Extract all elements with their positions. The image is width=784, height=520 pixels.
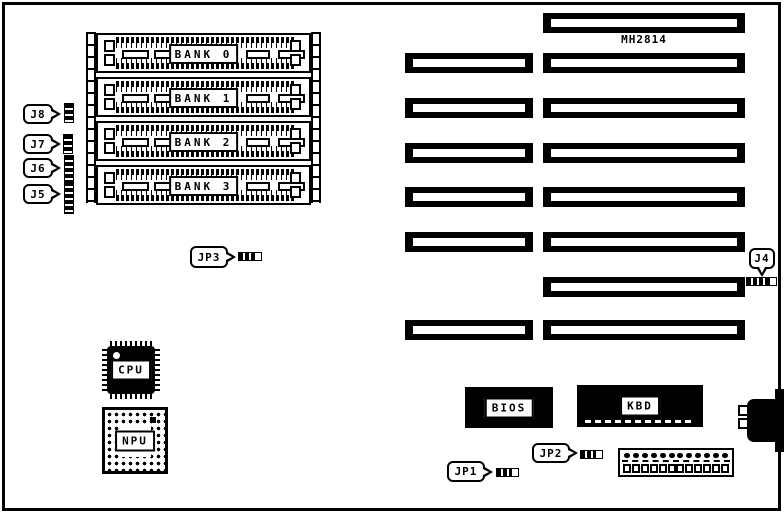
jumper-end-pin — [595, 451, 602, 458]
jumper-callout-j4: J4 — [749, 248, 775, 269]
header-pin — [713, 453, 719, 458]
expansion-slot-right — [543, 143, 745, 163]
header-pin-pad — [703, 464, 711, 473]
header-pin-pad — [712, 464, 720, 473]
jumper-callout-j7: J7 — [23, 134, 53, 154]
slot-contact-stripe — [551, 283, 737, 291]
kbd-controller-chip: KBD — [577, 385, 703, 427]
callout-pointer-fill — [483, 469, 489, 475]
jumper-label: J7 — [30, 138, 45, 151]
header-pin — [695, 453, 701, 458]
jumper-end-pin — [769, 278, 776, 285]
jumper-callout-jp2: JP2 — [532, 443, 570, 463]
expansion-slot-right — [543, 98, 745, 118]
callout-pointer-fill — [51, 191, 57, 197]
jumper-end-pin — [511, 469, 518, 476]
jumper-label: JP3 — [198, 251, 221, 264]
bios-label: BIOS — [485, 397, 534, 418]
simm-latch-rail-right — [311, 32, 321, 203]
slot-contact-stripe — [551, 19, 737, 27]
din-connector-notch — [738, 418, 749, 429]
kbd-label: KBD — [620, 396, 660, 417]
jumper-block-j6 — [64, 155, 74, 184]
jumper-label: JP2 — [540, 447, 563, 460]
header-pin-pad — [650, 464, 658, 473]
callout-pointer-fill — [226, 254, 232, 260]
bank-label: BANK 0 — [169, 44, 239, 64]
jumper-block-jp2 — [580, 450, 603, 459]
expansion-slot-right — [543, 232, 745, 252]
header-pin-pad — [676, 464, 684, 473]
expansion-slot-right — [543, 187, 745, 207]
slot-contact-stripe — [551, 59, 737, 67]
bank-label: BANK 1 — [169, 88, 239, 108]
jumper-callout-jp1: JP1 — [447, 461, 485, 482]
expansion-slot-right — [543, 320, 745, 340]
board-model-label: MH2814 — [543, 33, 745, 46]
header-pin — [660, 453, 666, 458]
jumper-label: JP1 — [455, 465, 478, 478]
header-pin-row-top — [620, 450, 732, 458]
latch-hook — [290, 186, 301, 198]
expansion-slot-right — [543, 277, 745, 297]
cpu-body: CPU — [107, 346, 155, 394]
header-pin-pad — [668, 464, 676, 473]
header-pin — [642, 453, 648, 458]
header-pin — [677, 453, 683, 458]
expansion-slot-right — [543, 13, 745, 33]
latch-hook — [290, 40, 301, 52]
din-connector-body — [747, 399, 777, 442]
npu-label: NPU — [115, 430, 155, 451]
slot-contact-stripe — [551, 104, 737, 112]
motherboard-diagram: BANK 0 BANK 1 BANK 2 — [0, 0, 784, 520]
latch-hook — [290, 98, 301, 110]
latch-hook — [290, 172, 301, 184]
jumper-label: J8 — [30, 108, 45, 121]
latch-hook — [290, 142, 301, 154]
header-pin-row-bottom — [620, 464, 732, 473]
header-pin-pad — [623, 464, 631, 473]
header-pin-pad — [721, 464, 729, 473]
latch-hook — [104, 40, 115, 52]
slot-contact-stripe — [413, 59, 525, 67]
npu-socket: NPU — [102, 407, 168, 474]
header-pin-pad — [641, 464, 649, 473]
callout-pointer-fill — [51, 111, 57, 117]
jumper-block-j4 — [746, 277, 777, 286]
jumper-callout-j8: J8 — [23, 104, 53, 124]
latch-hook — [104, 98, 115, 110]
expansion-slot-left — [405, 232, 533, 252]
header-pin — [686, 453, 692, 458]
callout-pointer-fill — [568, 450, 574, 456]
keyboard-pin-header — [618, 448, 734, 477]
latch-hook — [290, 128, 301, 140]
socket-post — [122, 182, 149, 191]
pin1-dot — [113, 352, 120, 359]
slot-contact-stripe — [551, 326, 737, 334]
slot-contact-stripe — [413, 104, 525, 112]
header-pin — [651, 453, 657, 458]
simm-bank-1: BANK 1 — [96, 77, 311, 117]
expansion-slot-left — [405, 53, 533, 73]
expansion-slot-left — [405, 320, 533, 340]
jumper-block-jp1 — [496, 468, 519, 477]
expansion-slot-left — [405, 98, 533, 118]
latch-hook — [104, 54, 115, 66]
header-pin-pad — [659, 464, 667, 473]
jumper-callout-jp3: JP3 — [190, 246, 228, 268]
expansion-slot-right — [543, 53, 745, 73]
latch-hook — [290, 84, 301, 96]
callout-pointer-fill — [51, 141, 57, 147]
latch-hook — [104, 186, 115, 198]
jumper-block-j5 — [64, 181, 74, 214]
simm-bank-2: BANK 2 — [96, 121, 311, 161]
pin1-marker — [150, 417, 156, 423]
latch-hook — [104, 172, 115, 184]
bios-chip: BIOS — [465, 387, 553, 428]
jumper-label: J6 — [30, 162, 45, 175]
jumper-block-j8 — [64, 103, 74, 123]
jumper-block-j7 — [63, 134, 73, 154]
header-pin — [704, 453, 710, 458]
jumper-label: J5 — [30, 188, 45, 201]
socket-post — [122, 50, 149, 59]
jumper-callout-j5: J5 — [23, 184, 53, 204]
latch-hook — [104, 128, 115, 140]
simm-bank-0: BANK 0 — [96, 33, 311, 73]
bank-label: BANK 3 — [169, 176, 239, 196]
jumper-block-jp3 — [238, 252, 262, 261]
slot-contact-stripe — [413, 193, 525, 201]
header-pin — [722, 453, 728, 458]
cpu-chip: CPU — [102, 341, 160, 399]
jumper-label: J4 — [754, 252, 769, 265]
slot-contact-stripe — [413, 149, 525, 157]
slot-contact-stripe — [551, 238, 737, 246]
simm-bank-3: BANK 3 — [96, 165, 311, 205]
slot-contact-stripe — [551, 193, 737, 201]
header-pin — [669, 453, 675, 458]
header-pin-pad — [685, 464, 693, 473]
slot-contact-stripe — [413, 326, 525, 334]
header-pin — [633, 453, 639, 458]
socket-post — [246, 50, 270, 59]
socket-post — [122, 94, 149, 103]
bank-label: BANK 2 — [169, 132, 239, 152]
socket-post — [246, 138, 270, 147]
din-connector-notch — [738, 405, 749, 416]
jumper-end-pin — [254, 253, 261, 260]
latch-hook — [290, 54, 301, 66]
expansion-slot-left — [405, 143, 533, 163]
socket-post — [122, 138, 149, 147]
header-pin-pad — [694, 464, 702, 473]
cpu-label: CPU — [111, 360, 151, 381]
header-divider — [622, 460, 730, 462]
slot-contact-stripe — [413, 238, 525, 246]
latch-hook — [104, 142, 115, 154]
socket-post — [246, 182, 270, 191]
kbd-pin-stripe — [585, 420, 695, 423]
socket-post — [246, 94, 270, 103]
simm-latch-rail-left — [86, 32, 96, 203]
latch-hook — [104, 84, 115, 96]
jumper-callout-j6: J6 — [23, 158, 53, 178]
slot-contact-stripe — [551, 149, 737, 157]
callout-pointer-fill — [51, 165, 57, 171]
header-pin — [624, 453, 630, 458]
header-pin-pad — [632, 464, 640, 473]
callout-pointer-fill — [759, 267, 765, 273]
expansion-slot-left — [405, 187, 533, 207]
